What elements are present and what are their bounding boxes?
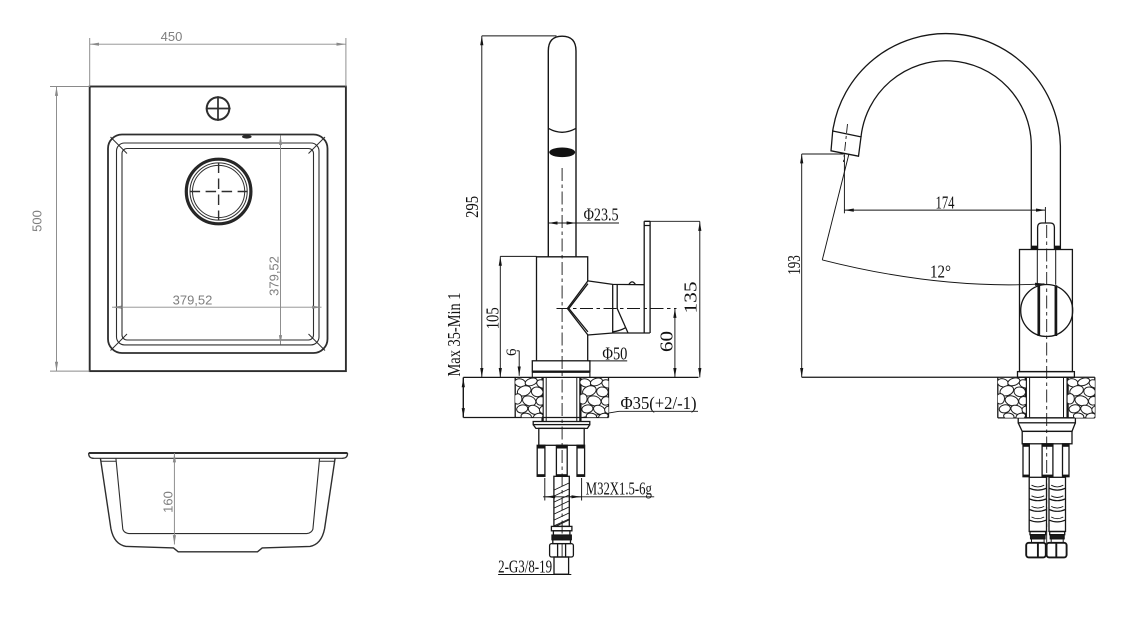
svg-text:Φ50: Φ50: [602, 343, 627, 363]
svg-text:160: 160: [161, 491, 176, 513]
svg-text:135: 135: [681, 282, 701, 314]
svg-text:2-G3/8-19: 2-G3/8-19: [498, 556, 552, 576]
svg-text:Φ35(+2/-1): Φ35(+2/-1): [621, 393, 697, 414]
svg-text:6: 6: [504, 348, 520, 356]
svg-text:12°: 12°: [930, 262, 951, 282]
svg-text:450: 450: [161, 29, 183, 44]
svg-text:105: 105: [482, 307, 502, 329]
svg-text:Max 35-Min 1: Max 35-Min 1: [444, 293, 464, 377]
svg-text:Φ23.5: Φ23.5: [584, 204, 619, 224]
svg-text:M32X1.5-6g: M32X1.5-6g: [586, 478, 652, 498]
svg-text:379,52: 379,52: [267, 256, 282, 296]
svg-text:295: 295: [462, 196, 482, 218]
svg-text:193: 193: [784, 255, 804, 275]
svg-text:174: 174: [936, 193, 955, 213]
svg-text:60: 60: [657, 331, 677, 352]
svg-text:379,52: 379,52: [173, 293, 213, 308]
svg-text:500: 500: [30, 210, 45, 232]
